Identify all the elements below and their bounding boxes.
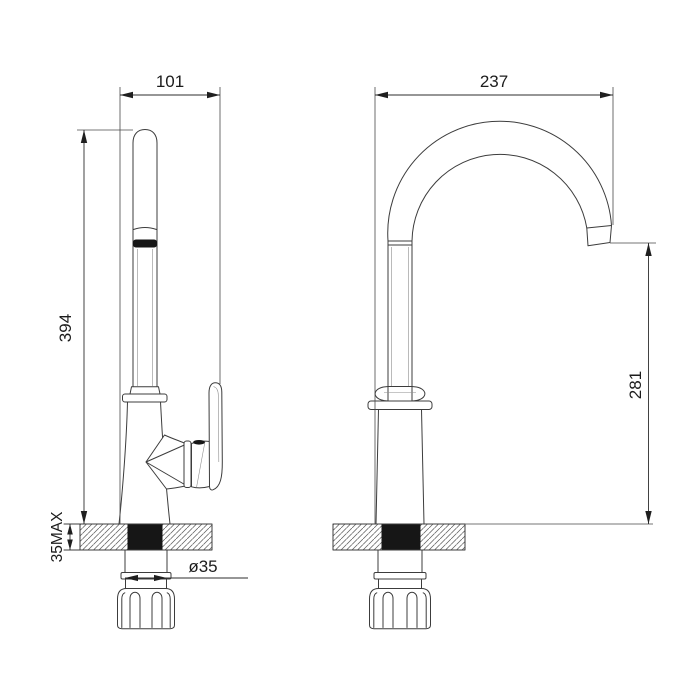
countertop-right-section <box>333 524 465 550</box>
dimension-outlet-height: 281 <box>465 243 656 524</box>
side-washer <box>374 573 426 580</box>
dim-label-281: 281 <box>626 371 645 399</box>
technical-drawing-canvas: 101 237 394 281 35MAX ø35 <box>0 0 700 700</box>
countertop-hatch-right-a <box>333 524 382 550</box>
faucet-dimension-drawing: 101 237 394 281 35MAX ø35 <box>0 0 700 700</box>
mounting-hole-left <box>128 524 162 550</box>
arrowhead-35max-bottom <box>67 540 73 551</box>
front-handle-blade <box>209 383 222 490</box>
countertop-hatch-left-a <box>80 524 128 550</box>
front-base-flange <box>123 394 168 402</box>
side-shank <box>378 550 422 573</box>
arrowhead-394-bottom <box>81 511 87 524</box>
dim-label-35max: 35MAX <box>49 511 66 562</box>
dim-label-394: 394 <box>56 314 75 342</box>
side-handle-left-bump <box>375 387 388 402</box>
side-shank-lower <box>379 579 422 589</box>
side-mounting-nut <box>370 589 431 629</box>
arrowhead-281-bottom <box>645 511 651 524</box>
side-handle-right-bump <box>412 387 425 402</box>
front-spout-tube <box>133 130 157 388</box>
dimension-overall-height: 394 <box>56 130 133 524</box>
arrowhead-281-top <box>645 243 651 256</box>
arrowhead-101-right <box>207 92 220 98</box>
front-view <box>118 130 223 629</box>
countertop-hatch-right-b <box>420 524 465 550</box>
front-handle-hub <box>184 441 191 488</box>
dim-label-237: 237 <box>480 72 508 91</box>
front-indicator-dot <box>194 441 205 445</box>
front-neck-step <box>130 387 160 394</box>
front-shank-lower <box>126 579 167 589</box>
front-shank <box>125 550 167 573</box>
side-body-cone <box>376 410 424 525</box>
dim-label-dia35: ø35 <box>188 557 217 576</box>
countertop-left-section <box>64 524 212 550</box>
side-view <box>368 121 612 628</box>
arrowhead-237-left <box>375 92 388 98</box>
dim-label-101: 101 <box>156 72 184 91</box>
arrowhead-35max-top <box>67 524 73 535</box>
front-mounting-nut <box>118 589 175 629</box>
side-gooseneck-spout <box>388 121 612 246</box>
countertop-hatch-left-b <box>162 524 212 550</box>
front-aerator-band <box>133 240 156 247</box>
mounting-hole-right <box>382 524 420 550</box>
side-collar <box>368 401 432 410</box>
arrowhead-101-left <box>120 92 133 98</box>
arrowhead-237-right <box>600 92 613 98</box>
arrowhead-394-top <box>81 130 87 143</box>
dimension-deck-thickness: 35MAX <box>49 511 73 562</box>
